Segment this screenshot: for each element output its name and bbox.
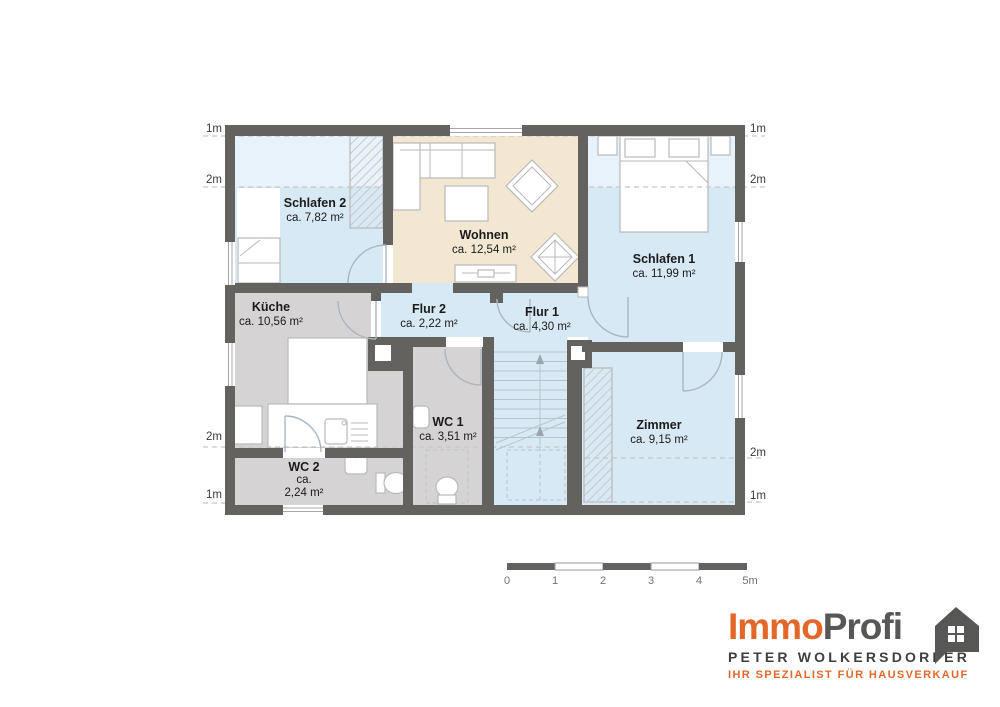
house-icon: [931, 604, 983, 674]
area-schlafen1: ca. 11,99 m²: [632, 268, 695, 280]
passage-wohnen-flur2: [412, 283, 453, 293]
scale-label-0: 0: [504, 575, 510, 587]
marker-left-2m-bottom: 2m: [206, 431, 222, 443]
window-zimmer-right: [735, 375, 745, 418]
area-wc1: ca. 3,51 m²: [419, 431, 477, 443]
area-wohnen: ca. 12,54 m²: [452, 244, 516, 256]
company-logo: ImmoProfi PETER WOLKERSDORFER IHR SPEZIA…: [728, 608, 988, 681]
area-schlafen2: ca. 7,82 m²: [286, 212, 344, 224]
door-opening-schlafen2: [383, 245, 393, 283]
label-wc1: WC 1: [432, 415, 463, 429]
kitchen-counter-upper: [288, 338, 367, 404]
window-schlafen1-right: [735, 222, 745, 262]
wc1-sink: [413, 406, 429, 428]
window-schlafen2-left: [225, 242, 235, 285]
area-zimmer: ca. 9,15 m²: [630, 434, 688, 446]
scale-label-4: 4: [696, 575, 702, 587]
window-wc2-bottom: [283, 505, 323, 515]
coffee-table: [445, 186, 488, 221]
area-kueche: ca. 10,56 m²: [239, 316, 303, 328]
label-wc2: WC 2: [288, 460, 319, 474]
kitchen-sink: [325, 419, 347, 444]
window-kueche-left: [225, 343, 235, 386]
label-flur1: Flur 1: [525, 305, 559, 319]
marker-right-2m-top: 2m: [750, 174, 766, 186]
marker-left-1m-top: 1m: [206, 123, 222, 135]
wardrobe-schlafen2: [350, 136, 383, 228]
scale-label-5m: 5m: [742, 575, 757, 587]
door-opening-zimmer: [683, 342, 723, 352]
scale-label-2: 2: [600, 575, 606, 587]
scale-label-3: 3: [648, 575, 654, 587]
label-wohnen: Wohnen: [459, 228, 508, 242]
door-jamb-flur1: [578, 287, 588, 297]
scale-label-1: 1: [552, 575, 558, 587]
wc1-toilet: [436, 477, 458, 497]
nightstand-left: [598, 136, 617, 155]
area-wc2-line2: 2,24 m²: [285, 487, 324, 499]
marker-left-1m-bottom: 1m: [206, 489, 222, 501]
label-schlafen2: Schlafen 2: [284, 196, 347, 210]
label-flur2: Flur 2: [412, 302, 446, 316]
kitchen-appliance: [234, 406, 262, 444]
scale-bar: 0 1 2 3 4 5m: [504, 563, 758, 587]
door-opening-wc1: [446, 337, 483, 347]
bed-schlafen2: [238, 238, 280, 283]
stairwell-area: [494, 337, 567, 505]
brand-name: ImmoProfi: [728, 608, 988, 645]
area-flur2: ca. 2,22 m²: [400, 318, 458, 330]
nightstand-right: [711, 136, 730, 155]
door-opening-wc2: [283, 448, 325, 458]
area-wc2-line1: ca.: [296, 474, 311, 486]
floorplan-drawing: Schlafen 2 ca. 7,82 m² Wohnen ca. 12,54 …: [0, 0, 1000, 707]
wc1-toilet-tank: [438, 495, 456, 504]
label-kueche: Küche: [252, 300, 290, 314]
window-wohnen-top: [450, 125, 522, 136]
marker-right-1m-top: 1m: [750, 123, 766, 135]
wardrobe-zimmer: [584, 368, 612, 502]
marker-left-2m-top: 2m: [206, 174, 222, 186]
floorplan-page: Schlafen 2 ca. 7,82 m² Wohnen ca. 12,54 …: [0, 0, 1000, 707]
marker-right-2m-bottom: 2m: [750, 447, 766, 459]
brand-name-orange: Immo: [728, 606, 823, 647]
marker-right-1m-bottom: 1m: [750, 490, 766, 502]
brand-name-dark: Profi: [823, 606, 902, 647]
label-zimmer: Zimmer: [636, 418, 681, 432]
area-flur1: ca. 4,30 m²: [513, 321, 571, 333]
label-schlafen1: Schlafen 1: [633, 252, 696, 266]
